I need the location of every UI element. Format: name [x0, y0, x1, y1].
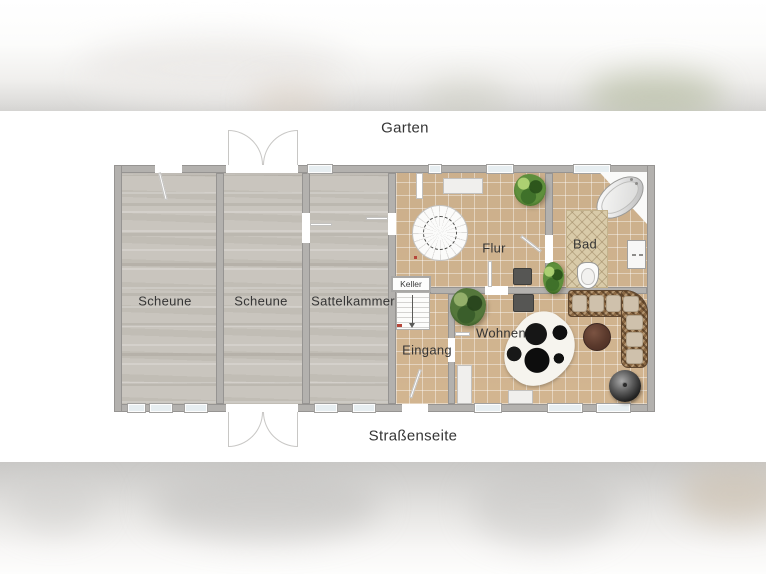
blur-blob	[420, 80, 510, 111]
door-opening-flur-wohnen	[485, 286, 508, 295]
round-coffee-table	[583, 323, 611, 351]
room-label-scheune-2: Scheune	[234, 294, 287, 309]
double-swing-door-leaf	[263, 130, 298, 165]
blur-blob	[150, 470, 380, 540]
wood-stove	[609, 370, 641, 402]
door-leaf	[416, 173, 423, 199]
chimney-block	[513, 294, 534, 312]
faucet-dot	[630, 178, 633, 181]
stairs-arrow-head	[409, 323, 415, 328]
window	[429, 165, 441, 173]
window	[128, 404, 145, 412]
window	[308, 165, 332, 173]
stove-knob	[622, 382, 628, 388]
door-leaf	[366, 217, 388, 220]
faucet-dot	[635, 182, 638, 185]
blur-blob	[250, 86, 330, 111]
room-label-flur: Flur	[482, 241, 506, 256]
window	[597, 404, 630, 412]
spiral-staircase-arrow	[423, 216, 457, 250]
sofa-cushion	[623, 296, 639, 312]
window	[315, 404, 337, 412]
wall-scheune1-scheune2	[216, 173, 224, 404]
keller-label: Keller	[400, 279, 422, 289]
sofa-cushion	[589, 295, 604, 312]
sink	[627, 240, 646, 269]
sideboard	[508, 390, 533, 404]
toilet-bowl	[581, 268, 595, 285]
room-label-wohnen: Wohnen	[476, 326, 526, 341]
sofa-cushion	[572, 295, 587, 312]
door-opening-scheune2-sattelkammer	[302, 213, 310, 243]
door-leaf	[455, 332, 470, 336]
stairs-direction-arrow	[412, 295, 413, 323]
wardrobe	[457, 365, 472, 404]
sink-tap	[632, 254, 636, 256]
keller-label-box: Keller	[391, 276, 431, 292]
garden-side-label: Garten	[381, 120, 429, 137]
door-leaf	[310, 223, 332, 226]
window	[150, 404, 172, 412]
wall-scheune2-sattelkammer	[302, 173, 310, 404]
door-opening-sattelkammer-flur	[388, 213, 396, 235]
blur-blob	[470, 466, 620, 546]
floorplan-image: Garten Straßenseite	[0, 0, 766, 574]
room-label-scheune-1: Scheune	[138, 294, 191, 309]
room-label-eingang: Eingang	[402, 343, 452, 358]
double-swing-door-leaf	[263, 412, 298, 447]
window	[487, 165, 513, 173]
blur-blob	[680, 464, 766, 524]
double-swing-door-leaf	[228, 412, 263, 447]
blurred-backdrop-top	[0, 0, 766, 111]
window	[548, 404, 582, 412]
sofa-cushion	[606, 295, 621, 312]
entrance-door-opening	[402, 404, 428, 412]
outer-wall-west	[114, 165, 122, 412]
outer-wall-east	[647, 165, 655, 412]
sofa-cushion	[626, 349, 643, 364]
window	[185, 404, 207, 412]
double-swing-door-leaf	[228, 130, 263, 165]
hall-cabinet	[443, 178, 483, 194]
blur-blob	[10, 472, 100, 532]
room-label-sattelkammer: Sattelkammer	[311, 294, 395, 309]
sink-tap	[639, 254, 643, 256]
window	[475, 404, 501, 412]
window	[353, 404, 375, 412]
street-side-label: Straßenseite	[369, 428, 458, 445]
floor-mark	[414, 256, 417, 259]
stairs-mark	[397, 324, 402, 327]
blur-blob	[585, 72, 725, 111]
room-sattelkammer-floor	[310, 173, 388, 404]
sofa-cushion	[626, 332, 643, 347]
window	[574, 165, 610, 173]
chimney-block	[513, 268, 532, 285]
building-outline: Keller	[114, 165, 655, 412]
room-scheune-2-floor	[224, 173, 302, 404]
blurred-backdrop-bottom	[0, 462, 766, 574]
room-label-bad: Bad	[573, 237, 597, 252]
sofa-cushion	[626, 315, 643, 330]
room-scheune-1-floor	[122, 173, 216, 404]
door-opening-flur-bad	[545, 235, 553, 263]
door-leaf	[488, 261, 492, 287]
